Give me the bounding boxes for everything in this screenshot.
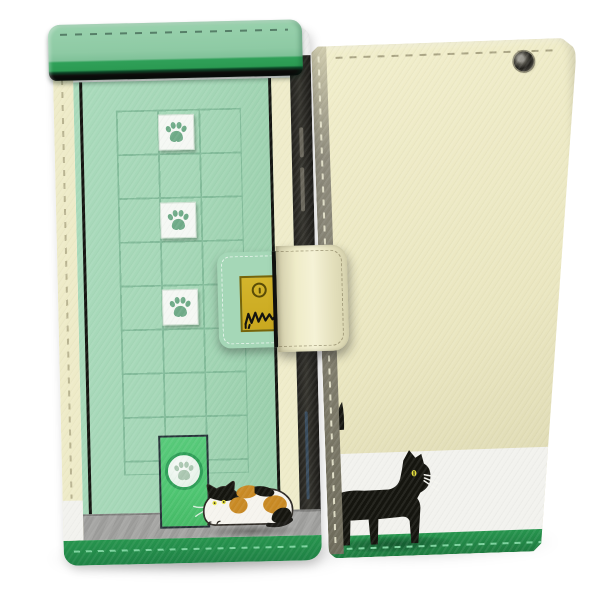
camera-eyelet — [513, 51, 534, 72]
clasp-leather-band — [276, 244, 350, 352]
paw-print-tile-1 — [158, 114, 195, 151]
phone-power-button — [299, 127, 304, 157]
clasp-printed-section — [217, 251, 279, 349]
calico-cat — [192, 477, 299, 532]
paw-icon — [165, 207, 192, 234]
keyhole-slot — [258, 287, 261, 293]
case-back-view — [311, 38, 593, 559]
keyhole-icon — [252, 282, 267, 297]
paw-icon — [163, 119, 190, 146]
black-cat — [331, 447, 442, 551]
front-bottom-stitch-line — [74, 545, 310, 552]
flap-stitch-line — [60, 29, 288, 36]
clasp-strap — [217, 244, 350, 355]
top-flap — [48, 19, 303, 81]
front-spine-stitch-line — [61, 79, 73, 499]
case-back-body — [311, 38, 593, 559]
phone-volume-button — [300, 167, 305, 211]
paw-icon — [167, 294, 194, 321]
paw-print-tile-2 — [160, 202, 197, 239]
phone-edge-reflection — [305, 411, 310, 499]
paw-print-tile-3 — [162, 289, 199, 326]
product-photo — [0, 0, 600, 600]
front-spine-white-band — [63, 500, 84, 540]
